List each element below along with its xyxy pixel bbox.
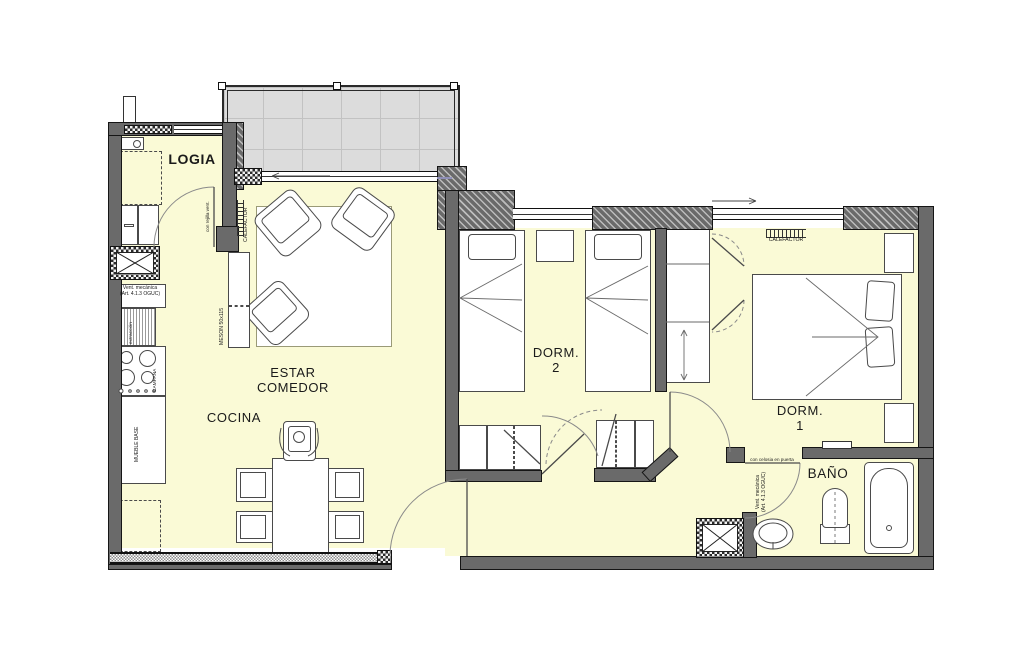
nightstand-dorm1	[884, 233, 914, 273]
flue-duct	[123, 96, 136, 124]
label-estar-line2: COMEDOR	[240, 381, 346, 396]
nightstand-dorm2	[536, 230, 574, 262]
label-estar-line1: ESTAR	[240, 366, 346, 381]
closet-dorm1	[660, 228, 710, 383]
wall-dorm2-dorm1	[655, 228, 667, 392]
dining-chair	[328, 511, 364, 543]
dorm1-window	[713, 208, 843, 220]
estar-sliding-window	[237, 171, 437, 182]
label-dorm2: DORM. 2	[520, 346, 592, 376]
railing-post	[218, 82, 226, 90]
label-mueble-base: MUEBLE BASE	[134, 412, 140, 462]
wall-left	[108, 122, 122, 570]
label-celosia: con celosia en puerta	[742, 457, 802, 462]
closet-dorm2-right	[596, 420, 654, 468]
vent-cocina-line2: (Art. 4.1.3 OGUC)	[113, 292, 167, 298]
logia-window	[174, 125, 222, 134]
sliding-arrow	[712, 198, 756, 204]
dining-chair	[236, 511, 273, 543]
label-logia: LOGIA	[158, 151, 226, 167]
bano-niche	[822, 441, 852, 449]
toilet-bowl	[822, 488, 848, 528]
pillow	[594, 234, 642, 260]
label-extraccion: extracción	[129, 312, 134, 344]
bathtub	[864, 462, 914, 554]
vent-bano-line2: (Art. 4.1.3 OGUC)	[762, 464, 768, 520]
label-meson: MESON 50x115	[219, 283, 225, 345]
entry-threshold	[377, 550, 392, 564]
label-dorm1-line1: DORM.	[764, 404, 836, 419]
terrace	[222, 85, 460, 181]
label-calefactor-estar: CALEFACTOR	[243, 198, 249, 242]
label-dorm1: DORM. 1	[764, 404, 836, 434]
label-cocina: COCINA	[176, 411, 292, 426]
label-vent-mecanica-cocina: Vent. mecánica (Art. 4.1.3 OGUC)	[113, 286, 167, 298]
dining-chair-head	[283, 421, 316, 461]
pillow	[468, 234, 516, 260]
dorm2-window	[513, 208, 592, 220]
pillow	[865, 280, 896, 322]
vent-blocks	[234, 168, 262, 185]
wall-bottom	[460, 556, 934, 570]
meson-counter	[228, 252, 250, 348]
floor-door-gap	[655, 392, 667, 452]
railing-post	[333, 82, 341, 90]
closet-dorm2-left	[459, 425, 541, 470]
wall-dorm2-bottom-left	[445, 470, 542, 482]
dining-table	[272, 458, 329, 554]
label-vent-mecanica-bano: Vent. mecánica (Art. 4.1.3 OGUC)	[756, 464, 768, 520]
wall-top-between-windows	[592, 206, 713, 230]
wall-right	[918, 206, 934, 570]
wall-estar-hall	[445, 190, 459, 478]
label-dorm2-line2: 2	[520, 361, 592, 376]
floor-plan: LOGIA COCINA ESTAR COMEDOR DORM. 2 DORM.…	[0, 0, 1024, 650]
dining-chair	[328, 468, 364, 502]
label-estar: ESTAR COMEDOR	[240, 366, 346, 396]
wall-logia-foot	[216, 226, 239, 252]
shaft-logia	[110, 246, 160, 280]
logia-vent-grille	[124, 125, 172, 134]
pillow	[865, 326, 896, 368]
label-bano: BAÑO	[793, 466, 863, 482]
railing-post	[450, 82, 458, 90]
shaft-bano	[696, 518, 744, 558]
washer-space-dashed	[115, 151, 162, 205]
dining-chair	[236, 468, 273, 502]
terrace-railing	[227, 90, 455, 176]
nightstand-dorm1	[884, 403, 914, 443]
wall-bottom-under-window	[108, 564, 392, 570]
label-rejilla-vent: con rejilla vent.	[205, 196, 210, 232]
label-dorm1-line2: 1	[764, 419, 836, 434]
comedor-window-sill	[110, 552, 392, 564]
wall-bano-left-stub	[742, 512, 757, 558]
label-campana: CAMPANA	[153, 352, 158, 392]
label-calefactor-dorm1: CALEFACTOR	[760, 238, 812, 244]
label-dorm2-line1: DORM.	[520, 346, 592, 361]
